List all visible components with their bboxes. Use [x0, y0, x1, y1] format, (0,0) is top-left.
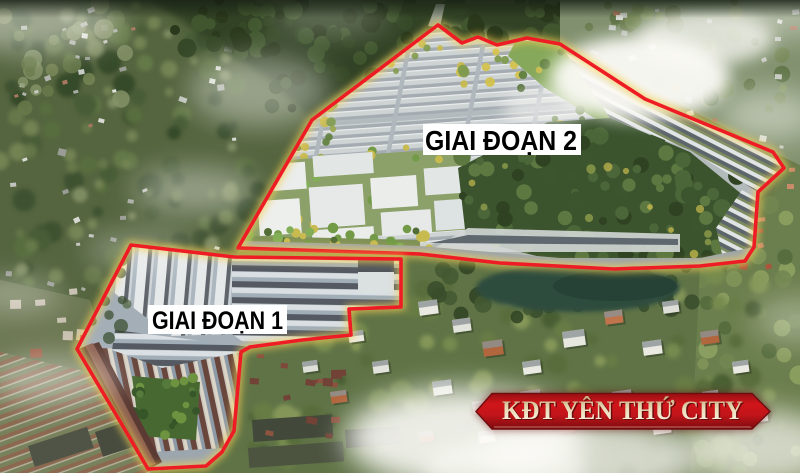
svg-text:GIAI ĐOẠN 2: GIAI ĐOẠN 2: [425, 125, 577, 156]
svg-text:KĐT YÊN THỨ CITY: KĐT YÊN THỨ CITY: [502, 396, 743, 425]
svg-text:GIAI ĐOẠN 1: GIAI ĐOẠN 1: [152, 307, 283, 335]
